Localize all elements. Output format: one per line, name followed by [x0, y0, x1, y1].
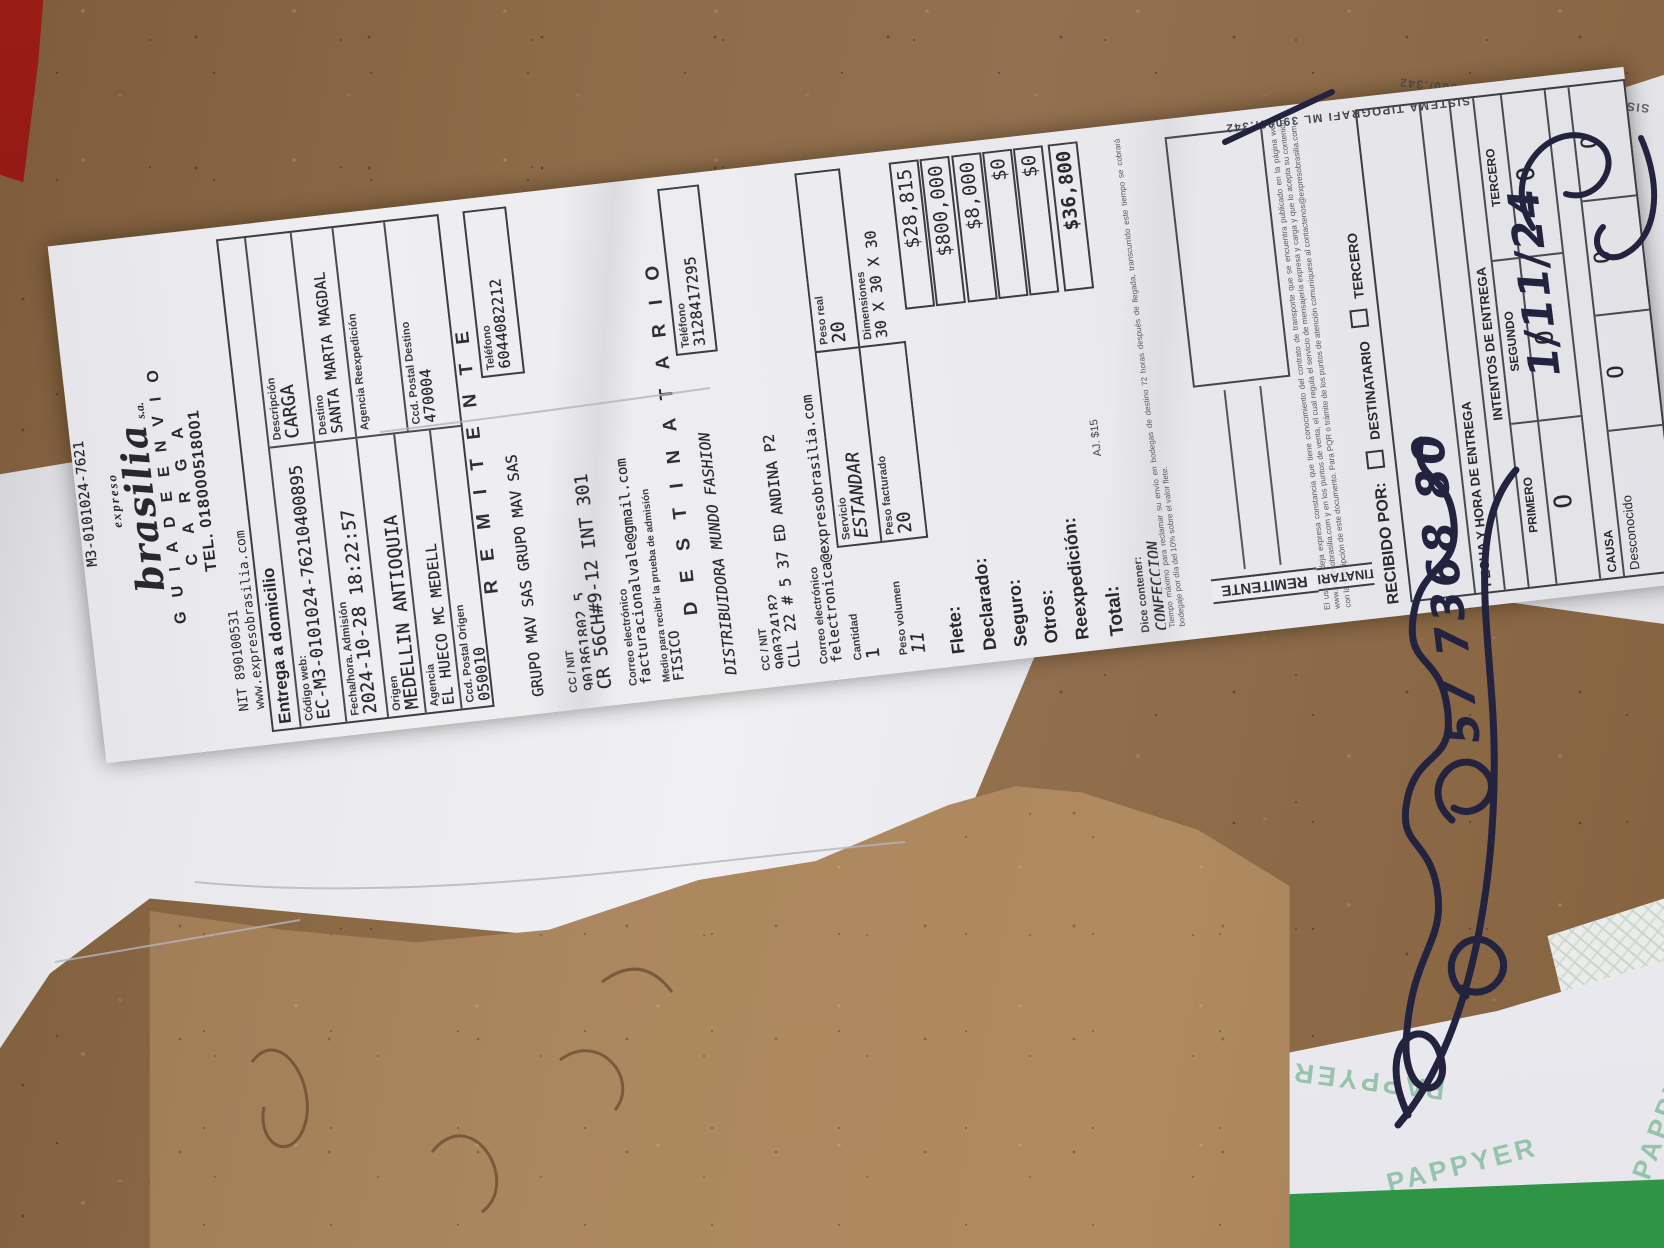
blank-line-2 — [1259, 386, 1281, 565]
pappyer-watermark: PAPPYER — [1014, 1110, 1172, 1180]
checkbox-tercero — [1349, 308, 1369, 328]
blank-line-1 — [1224, 390, 1246, 569]
desconocido-mark-1: O — [1596, 311, 1664, 432]
edge-label-remitente: REMITENTE — [1196, 566, 1321, 606]
desconocido-mark-2: O — [1583, 196, 1652, 317]
photo-scene: SISTEMA TIPOGRAFI ML 39000/.342 O M3-010… — [0, 0, 1664, 1248]
cardboard-scuffs — [252, 969, 672, 1212]
total-adjust-note: AJ. $15 — [1088, 419, 1104, 457]
checkbox-destinatario — [1365, 449, 1385, 469]
brand-suffix: s.a. — [132, 401, 148, 419]
pappyer-watermark: PAPPYER — [1384, 1132, 1542, 1200]
pappyer-watermark: PAPPYER — [1626, 1027, 1664, 1183]
shipping-waybill: M3-0101024-7621 expreso brasilia s.a. G … — [48, 67, 1664, 763]
pappyer-watermark: PAPPYER — [1289, 1056, 1447, 1106]
delivery-grid: FECHA Y HORA DE ENTREGA INTENTOS DE ENTR… — [1355, 79, 1664, 603]
pappyer-watermark: PAPPYER — [974, 1165, 1132, 1235]
